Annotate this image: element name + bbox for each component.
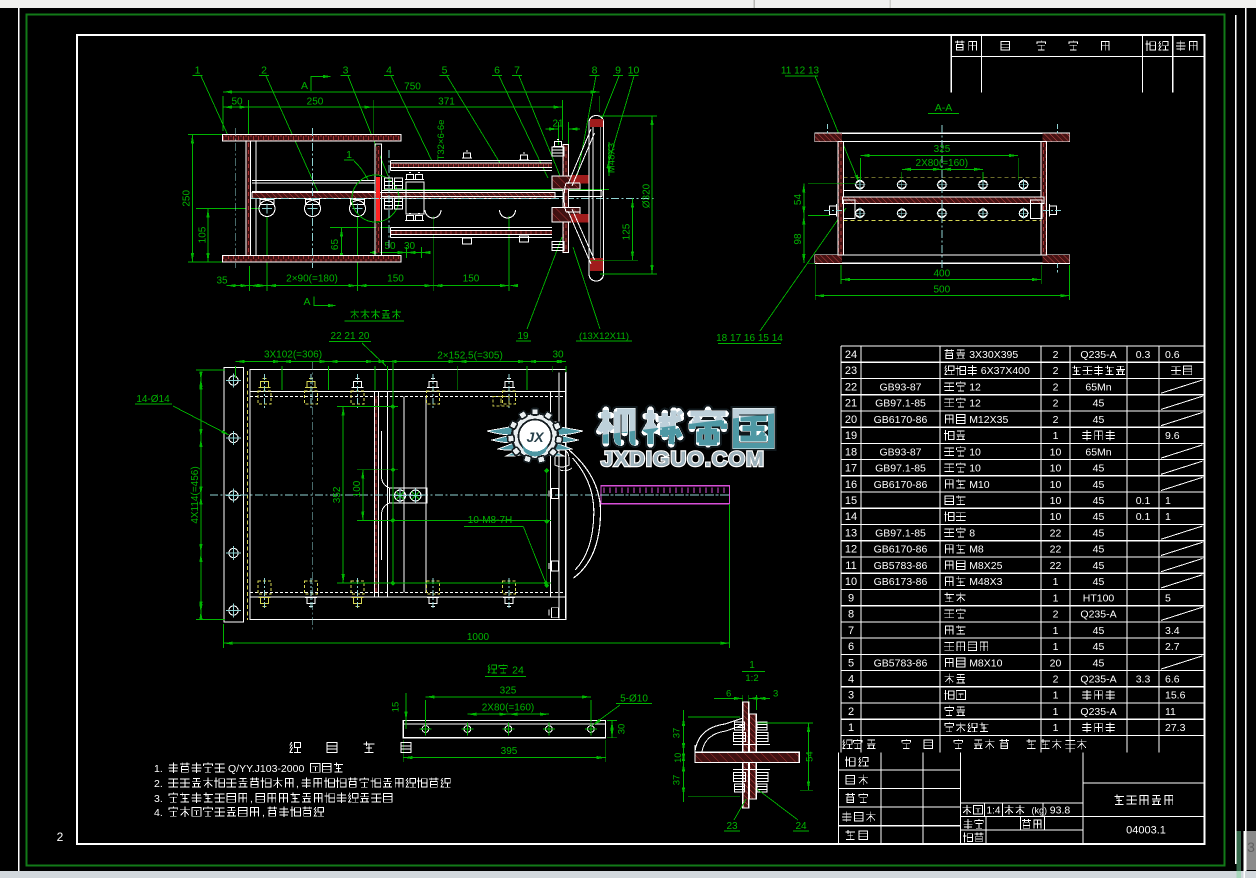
svg-text:16: 16	[845, 479, 857, 491]
svg-text:45: 45	[1093, 511, 1105, 523]
svg-text:54: 54	[805, 751, 816, 762]
svg-text:22: 22	[1050, 527, 1062, 539]
svg-text:100: 100	[352, 480, 363, 497]
svg-text:GB5783-86: GB5783-86	[874, 560, 928, 572]
svg-text:2: 2	[1053, 414, 1059, 426]
svg-text:3X102(=306): 3X102(=306)	[264, 350, 322, 361]
svg-text:5: 5	[442, 65, 448, 77]
svg-text:M48X3: M48X3	[969, 576, 1002, 588]
svg-text:12: 12	[969, 381, 981, 393]
svg-text:HT100: HT100	[1083, 592, 1115, 604]
svg-text:3.: 3.	[154, 793, 163, 805]
svg-text:371: 371	[438, 97, 455, 108]
svg-text:24: 24	[512, 665, 524, 677]
svg-text:3: 3	[343, 65, 349, 77]
svg-text:1: 1	[1165, 495, 1171, 507]
svg-text:3.4: 3.4	[1165, 625, 1180, 637]
svg-text:65Mn: 65Mn	[1085, 381, 1111, 393]
svg-text:65: 65	[330, 239, 341, 251]
svg-text:10: 10	[673, 753, 683, 763]
svg-text:9: 9	[848, 592, 854, 604]
svg-text:0.6: 0.6	[1165, 349, 1180, 361]
svg-text:45: 45	[1093, 479, 1105, 491]
svg-text:4X114(=456): 4X114(=456)	[190, 466, 201, 523]
svg-text:6.6: 6.6	[1165, 674, 1180, 686]
svg-text:93.8: 93.8	[1050, 804, 1071, 816]
svg-text:250: 250	[307, 97, 324, 108]
svg-text:7: 7	[514, 65, 520, 77]
svg-text:21: 21	[845, 398, 857, 410]
svg-text:45: 45	[1093, 560, 1105, 572]
svg-text:,: ,	[250, 793, 253, 805]
svg-text:0.1: 0.1	[1136, 511, 1151, 523]
svg-text:15.6: 15.6	[1165, 690, 1186, 702]
svg-text:GB6173-86: GB6173-86	[874, 576, 928, 588]
svg-text:GB6170-86: GB6170-86	[874, 414, 928, 426]
svg-text:GB97.1-85: GB97.1-85	[875, 527, 926, 539]
svg-text:1: 1	[346, 149, 352, 161]
svg-text:54: 54	[793, 194, 804, 206]
svg-text:1: 1	[1053, 641, 1059, 653]
svg-text:325: 325	[934, 144, 951, 155]
svg-text:GB5783-86: GB5783-86	[874, 657, 928, 669]
svg-text:M8X25: M8X25	[969, 560, 1002, 572]
svg-text:500: 500	[933, 285, 950, 296]
svg-text:150: 150	[463, 274, 480, 285]
svg-text:17: 17	[845, 463, 857, 475]
svg-text:A: A	[303, 296, 310, 308]
svg-text:5: 5	[848, 657, 854, 669]
svg-text:8: 8	[848, 609, 854, 621]
svg-text:22: 22	[1050, 544, 1062, 556]
svg-text:45: 45	[1093, 641, 1105, 653]
svg-text:23: 23	[726, 821, 738, 832]
svg-text:5: 5	[1165, 592, 1171, 604]
svg-text:45: 45	[1093, 544, 1105, 556]
svg-text:27.3: 27.3	[1165, 722, 1186, 734]
svg-text:2: 2	[1053, 365, 1059, 377]
svg-text:12: 12	[969, 398, 981, 410]
svg-text:3.3: 3.3	[1136, 674, 1151, 686]
svg-text:7: 7	[848, 625, 854, 637]
svg-text:1.: 1.	[154, 763, 163, 775]
svg-text:2: 2	[1053, 398, 1059, 410]
svg-text:GB93-87: GB93-87	[879, 381, 921, 393]
svg-text:4: 4	[848, 674, 854, 686]
svg-text:11 12 13: 11 12 13	[781, 66, 820, 77]
svg-text:M8: M8	[969, 544, 984, 556]
svg-text:,: ,	[262, 807, 265, 819]
svg-text:1: 1	[1053, 706, 1059, 718]
svg-text:1: 1	[1053, 722, 1059, 734]
svg-text:6: 6	[726, 689, 731, 700]
svg-text:22: 22	[845, 381, 857, 393]
svg-text:GB6170-86: GB6170-86	[874, 544, 928, 556]
svg-text:M12X35: M12X35	[969, 414, 1008, 426]
svg-text:6X37X400: 6X37X400	[981, 365, 1030, 377]
svg-text:105: 105	[198, 226, 209, 243]
svg-text:24: 24	[795, 821, 807, 832]
svg-text:0.1: 0.1	[1136, 495, 1151, 507]
svg-text:35: 35	[216, 276, 228, 287]
svg-text:4.: 4.	[154, 807, 163, 819]
svg-text:A: A	[301, 80, 308, 92]
svg-text:45: 45	[1093, 657, 1105, 669]
svg-text:11: 11	[845, 560, 856, 572]
svg-text:50: 50	[384, 241, 396, 252]
svg-text:45: 45	[1093, 495, 1105, 507]
svg-text:352: 352	[332, 486, 343, 503]
svg-text:(kg): (kg)	[1032, 805, 1048, 815]
svg-text:2×90(=180): 2×90(=180)	[286, 274, 338, 285]
svg-text:37: 37	[672, 728, 683, 739]
svg-text:2×152.5(=305): 2×152.5(=305)	[437, 351, 503, 362]
svg-text:10: 10	[1050, 495, 1062, 507]
svg-text:3: 3	[848, 690, 854, 702]
svg-text:GB97.1-85: GB97.1-85	[875, 463, 926, 475]
svg-text:50: 50	[231, 97, 243, 108]
svg-text:37: 37	[672, 775, 683, 786]
svg-text:15: 15	[845, 495, 857, 507]
svg-text:2.7: 2.7	[1165, 641, 1180, 653]
svg-text:2X80(=160): 2X80(=160)	[482, 703, 535, 714]
svg-text:98: 98	[793, 233, 804, 245]
svg-text:Q235-A: Q235-A	[1080, 674, 1116, 686]
svg-text:18 17 16 15 14: 18 17 16 15 14	[716, 333, 783, 344]
svg-text:8: 8	[592, 65, 598, 77]
svg-text:15: 15	[391, 702, 402, 713]
svg-text:1: 1	[1165, 511, 1171, 523]
svg-text:1:2: 1:2	[745, 673, 758, 684]
svg-text:20: 20	[1050, 657, 1062, 669]
svg-text:65Mn: 65Mn	[1085, 446, 1111, 458]
svg-text:22 21 20: 22 21 20	[331, 331, 370, 342]
svg-text:10: 10	[628, 65, 640, 77]
svg-text:Q235-A: Q235-A	[1080, 609, 1116, 621]
svg-text:M10: M10	[969, 479, 990, 491]
svg-text:45: 45	[1093, 625, 1105, 637]
svg-text:9: 9	[615, 65, 621, 77]
svg-text:30: 30	[404, 241, 416, 252]
svg-text:2: 2	[1053, 609, 1059, 621]
svg-text:JX: JX	[526, 429, 545, 445]
svg-text:18: 18	[845, 446, 857, 458]
svg-text:JXDIGUO.COM: JXDIGUO.COM	[601, 447, 765, 471]
svg-text:19: 19	[845, 430, 857, 442]
svg-text:1: 1	[1053, 430, 1059, 442]
svg-text:10: 10	[969, 446, 981, 458]
svg-text:4: 4	[386, 65, 392, 77]
svg-text:24: 24	[845, 349, 857, 361]
svg-text:10: 10	[969, 463, 981, 475]
svg-text:395: 395	[501, 746, 518, 757]
svg-text:Q235-A: Q235-A	[1080, 706, 1116, 718]
svg-text:325: 325	[500, 686, 517, 697]
svg-text:1: 1	[1053, 576, 1059, 588]
svg-text:30: 30	[552, 350, 564, 361]
svg-text:5-Ø10: 5-Ø10	[620, 694, 648, 705]
svg-text:1000: 1000	[467, 632, 490, 643]
svg-text:1: 1	[1053, 690, 1059, 702]
svg-text:GB93-87: GB93-87	[879, 446, 921, 458]
svg-text:M8X10: M8X10	[969, 657, 1002, 669]
svg-text:14: 14	[845, 511, 857, 523]
svg-text:GB6170-86: GB6170-86	[874, 479, 928, 491]
svg-text:10: 10	[1050, 479, 1062, 491]
svg-text:2: 2	[57, 830, 64, 844]
svg-text:10: 10	[1050, 463, 1062, 475]
svg-text:9.6: 9.6	[1165, 430, 1180, 442]
svg-text:6: 6	[848, 641, 854, 653]
svg-text:45: 45	[1093, 576, 1105, 588]
svg-text:1: 1	[195, 65, 201, 77]
svg-text:,: ,	[296, 778, 299, 790]
svg-text:2.: 2.	[154, 778, 163, 790]
svg-text:T32×6-6e: T32×6-6e	[436, 120, 447, 161]
svg-text:125: 125	[622, 223, 633, 240]
svg-text:45: 45	[1093, 527, 1105, 539]
svg-text:Q/YY.J103-2000: Q/YY.J103-2000	[228, 763, 304, 775]
svg-text:150: 150	[387, 274, 404, 285]
svg-text:3: 3	[1247, 839, 1255, 855]
svg-text:3: 3	[773, 689, 778, 700]
svg-text:1: 1	[848, 722, 854, 734]
svg-text:1: 1	[749, 660, 755, 671]
svg-text:45: 45	[1093, 414, 1105, 426]
svg-text:2: 2	[848, 706, 854, 718]
svg-text:11: 11	[1165, 706, 1176, 718]
svg-text:14-Ø14: 14-Ø14	[136, 394, 170, 405]
svg-text:30: 30	[617, 724, 628, 735]
svg-text:13: 13	[845, 527, 857, 539]
svg-text:2: 2	[1053, 674, 1059, 686]
svg-text:12: 12	[845, 544, 857, 556]
svg-text:45: 45	[1093, 398, 1105, 410]
svg-text:Ø320: Ø320	[642, 183, 653, 208]
svg-text:20: 20	[845, 414, 857, 426]
svg-text:400: 400	[933, 269, 950, 280]
svg-text:10: 10	[1050, 446, 1062, 458]
svg-text:23: 23	[845, 365, 857, 377]
svg-text:45: 45	[1093, 463, 1105, 475]
svg-text:2: 2	[1053, 381, 1059, 393]
svg-text:1: 1	[1053, 592, 1059, 604]
svg-text:2: 2	[1053, 349, 1059, 361]
svg-text:0.3: 0.3	[1136, 349, 1151, 361]
svg-text:10: 10	[1050, 511, 1062, 523]
svg-text:750: 750	[404, 82, 421, 93]
svg-text:8: 8	[969, 527, 975, 539]
svg-text:250: 250	[182, 190, 193, 207]
svg-text:6: 6	[494, 65, 500, 77]
svg-text:GB97.1-85: GB97.1-85	[875, 398, 926, 410]
svg-text:(13X12X11): (13X12X11)	[579, 331, 629, 342]
svg-text:10: 10	[845, 576, 857, 588]
svg-text:19: 19	[517, 331, 529, 342]
svg-text:04003.1: 04003.1	[1126, 825, 1166, 837]
svg-text:22: 22	[1050, 560, 1062, 572]
svg-text:1:4: 1:4	[987, 805, 1001, 816]
svg-text:1: 1	[1053, 625, 1059, 637]
svg-text:2: 2	[261, 65, 267, 77]
svg-text:Q235-A: Q235-A	[1080, 349, 1116, 361]
svg-text:2X80(=160): 2X80(=160)	[916, 158, 969, 169]
svg-text:3X30X395: 3X30X395	[969, 349, 1018, 361]
svg-text:A-A: A-A	[935, 102, 953, 114]
svg-text:10-M8-7H: 10-M8-7H	[468, 515, 512, 526]
